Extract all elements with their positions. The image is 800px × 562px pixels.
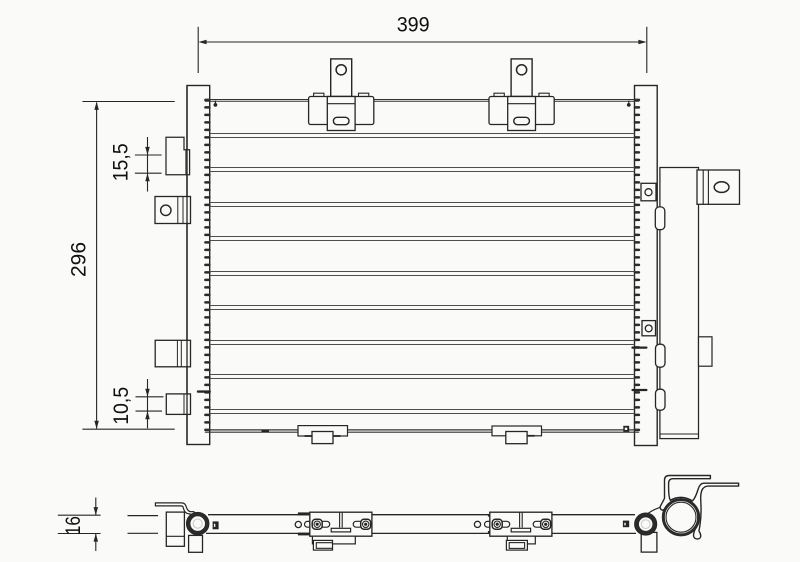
svg-text:10,5: 10,5 — [109, 387, 133, 425]
svg-text:15,5: 15,5 — [109, 143, 133, 181]
svg-text:399: 399 — [397, 12, 430, 36]
svg-text:296: 296 — [67, 242, 91, 277]
svg-text:16: 16 — [61, 516, 85, 535]
